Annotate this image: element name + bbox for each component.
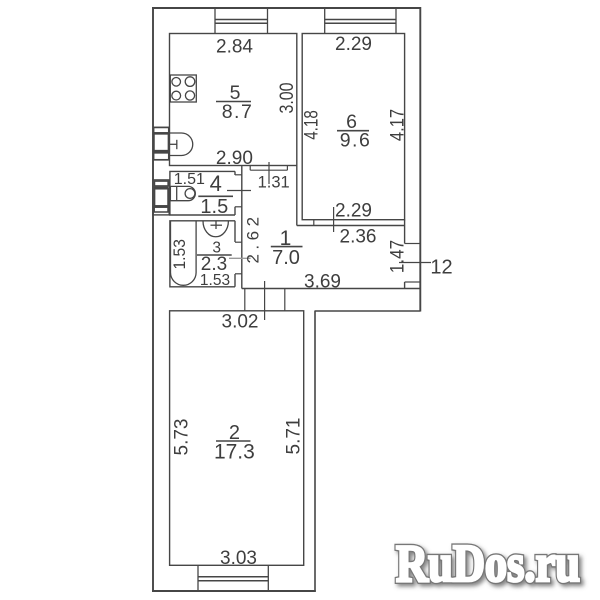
svg-text:2.84: 2.84 xyxy=(216,36,253,57)
svg-text:12: 12 xyxy=(430,257,452,279)
svg-text:17.3: 17.3 xyxy=(214,440,255,463)
svg-text:3.69: 3.69 xyxy=(304,271,341,292)
svg-text:4.18: 4.18 xyxy=(300,110,322,140)
svg-text:2.90: 2.90 xyxy=(216,148,253,169)
svg-text:3.03: 3.03 xyxy=(220,548,257,569)
svg-text:1.31: 1.31 xyxy=(258,174,290,192)
svg-text:2.29: 2.29 xyxy=(335,200,372,221)
svg-text:4.17: 4.17 xyxy=(387,109,408,141)
svg-text:9.6: 9.6 xyxy=(340,130,372,152)
svg-text:8.7: 8.7 xyxy=(222,101,254,123)
svg-text:5.73: 5.73 xyxy=(171,419,192,456)
svg-text:1.51: 1.51 xyxy=(174,171,205,188)
svg-text:1.47: 1.47 xyxy=(387,240,408,273)
svg-text:2.62: 2.62 xyxy=(244,212,263,263)
svg-text:4: 4 xyxy=(210,171,222,196)
svg-text:7.0: 7.0 xyxy=(272,247,300,269)
svg-text:1.53: 1.53 xyxy=(200,272,230,289)
svg-text:RuDos.ru: RuDos.ru xyxy=(396,535,580,593)
svg-text:3.02: 3.02 xyxy=(222,311,259,332)
svg-text:1.5: 1.5 xyxy=(200,196,228,218)
svg-text:1.53: 1.53 xyxy=(171,239,190,269)
svg-text:2.29: 2.29 xyxy=(335,34,372,55)
svg-text:2.36: 2.36 xyxy=(340,226,377,247)
svg-text:5.71: 5.71 xyxy=(283,418,304,455)
svg-text:3.00: 3.00 xyxy=(276,82,298,113)
